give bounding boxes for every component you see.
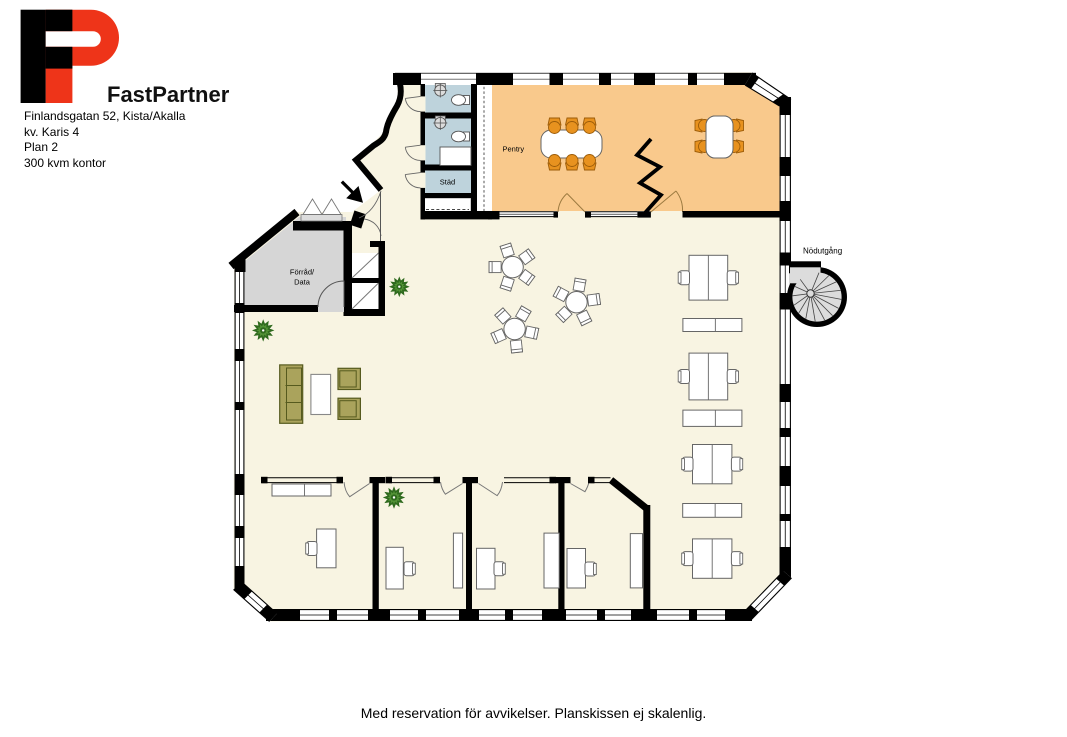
svg-text:Förråd/: Förråd/ <box>290 268 315 277</box>
svg-text:Nödutgång: Nödutgång <box>803 247 842 256</box>
svg-text:Pentry: Pentry <box>503 145 525 154</box>
svg-text:Städ: Städ <box>440 178 455 187</box>
svg-text:Data: Data <box>294 278 311 287</box>
